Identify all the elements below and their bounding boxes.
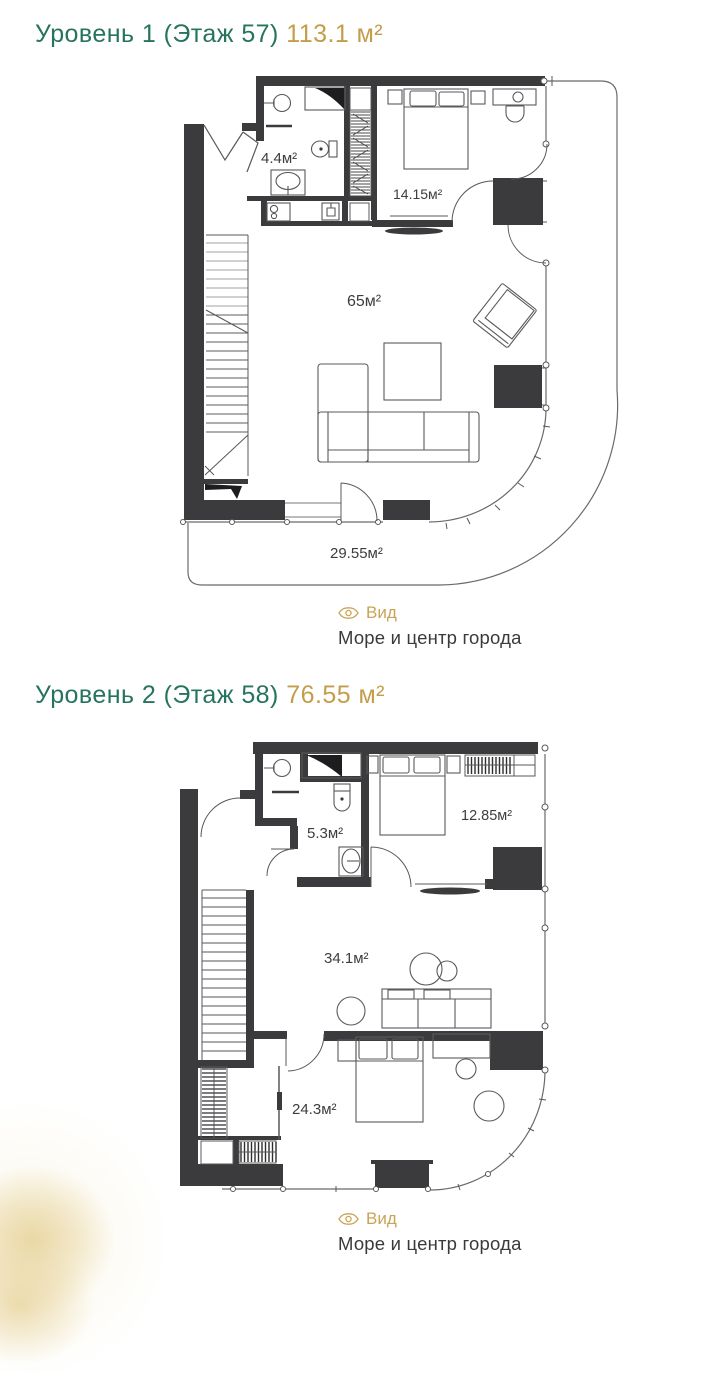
svg-text:12.85м²: 12.85м² [461,808,512,824]
svg-text:14.15м²: 14.15м² [393,186,443,202]
svg-text:34.1м²: 34.1м² [324,950,369,967]
svg-text:5.3м²: 5.3м² [307,825,343,842]
svg-text:65м²: 65м² [347,293,382,310]
svg-text:4.4м²: 4.4м² [261,150,297,167]
svg-text:29.55м²: 29.55м² [330,545,383,562]
svg-text:24.3м²: 24.3м² [292,1101,337,1118]
